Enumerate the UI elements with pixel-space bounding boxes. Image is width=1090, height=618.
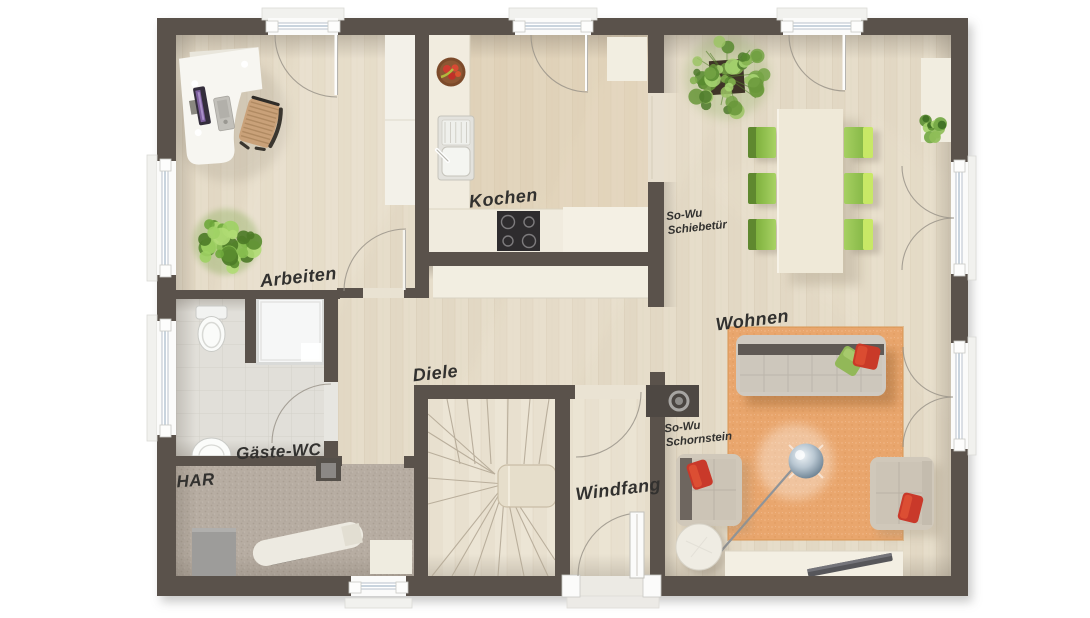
svg-text:HAR: HAR — [176, 470, 216, 492]
